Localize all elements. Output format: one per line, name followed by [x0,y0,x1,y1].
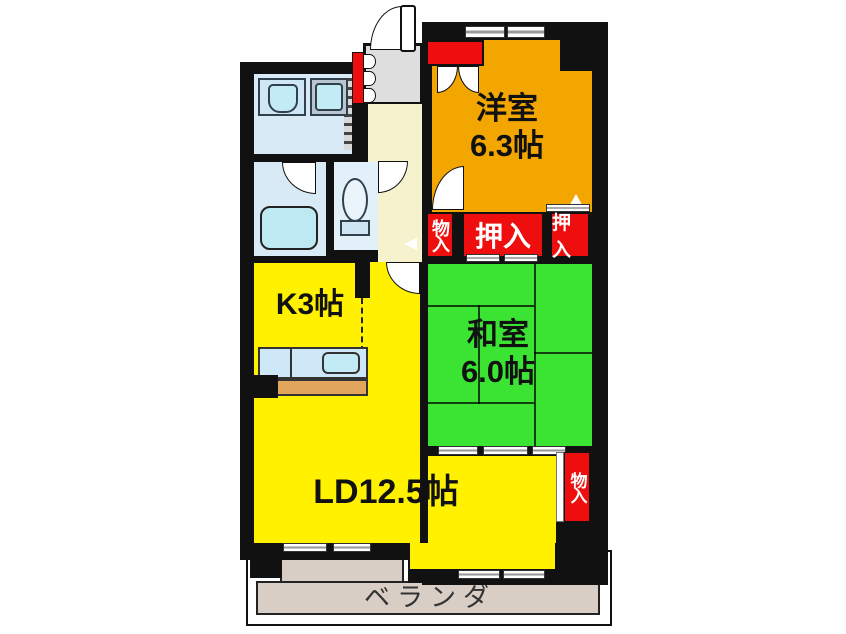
toilet-tank-base [340,220,370,236]
window-ld-right-2 [503,570,545,579]
western-room-name: 洋室 [476,91,538,128]
slider-above-oshiire [546,204,590,212]
window-ld-left-1 [283,543,327,552]
japanese-room-size: 6.0帖 [461,354,535,391]
veranda-label: ベランダ [300,582,560,614]
entrance-door-arc [370,6,402,50]
wall-bottom-left-corner [250,558,282,578]
window-ld-right-1 [458,570,500,579]
storage-ld-closet: 物入 [564,452,590,522]
slider-japanese-ld-2 [483,446,528,455]
hallway-door-marker [404,238,417,250]
shoe-cabinet-door-fold-3 [363,88,376,103]
slider-below-oshiire-2 [504,254,538,262]
western-room-label: 洋室 6.3帖 [432,58,582,198]
living-bottom-bulge [410,543,555,569]
counter-divider [290,349,292,377]
slider-japanese-ld-1 [438,446,478,455]
shoe-cabinet-door-fold-2 [363,71,376,86]
storage-ld-door [556,452,564,522]
western-room-size: 6.3帖 [470,128,544,165]
window-ld-left-2 [333,543,371,552]
kitchen-ld-dashed-boundary [361,298,363,352]
kitchen-label: K3帖 [262,288,358,322]
kitchen-counter-lower [276,379,368,396]
window-western-top-1 [465,26,505,38]
floor-plan: ベランダ 洋室 6.3帖 物入 押入 押入 [0,0,846,634]
hallway-upper [368,104,422,162]
washing-machine [315,83,343,111]
japanese-room-label: 和室 6.0帖 [428,294,568,414]
oshiire-main-closet: 押入 [462,212,544,258]
japanese-room-name: 和室 [467,317,529,354]
living-label: LD12.5帖 [296,472,476,512]
wall-counter-stub [254,375,278,398]
bathtub [260,206,318,250]
toilet-bowl [342,178,368,222]
slider-below-oshiire-1 [466,254,500,262]
kitchen-sink [322,352,360,374]
shoe-cabinet-door-fold-1 [363,54,376,69]
storage-hall-closet: 物入 [426,212,454,258]
oshiire-side-closet: 押入 [550,212,590,258]
entrance-door-leaf [400,5,416,52]
washbasin-bowl [268,84,298,113]
window-western-top-2 [507,26,545,38]
